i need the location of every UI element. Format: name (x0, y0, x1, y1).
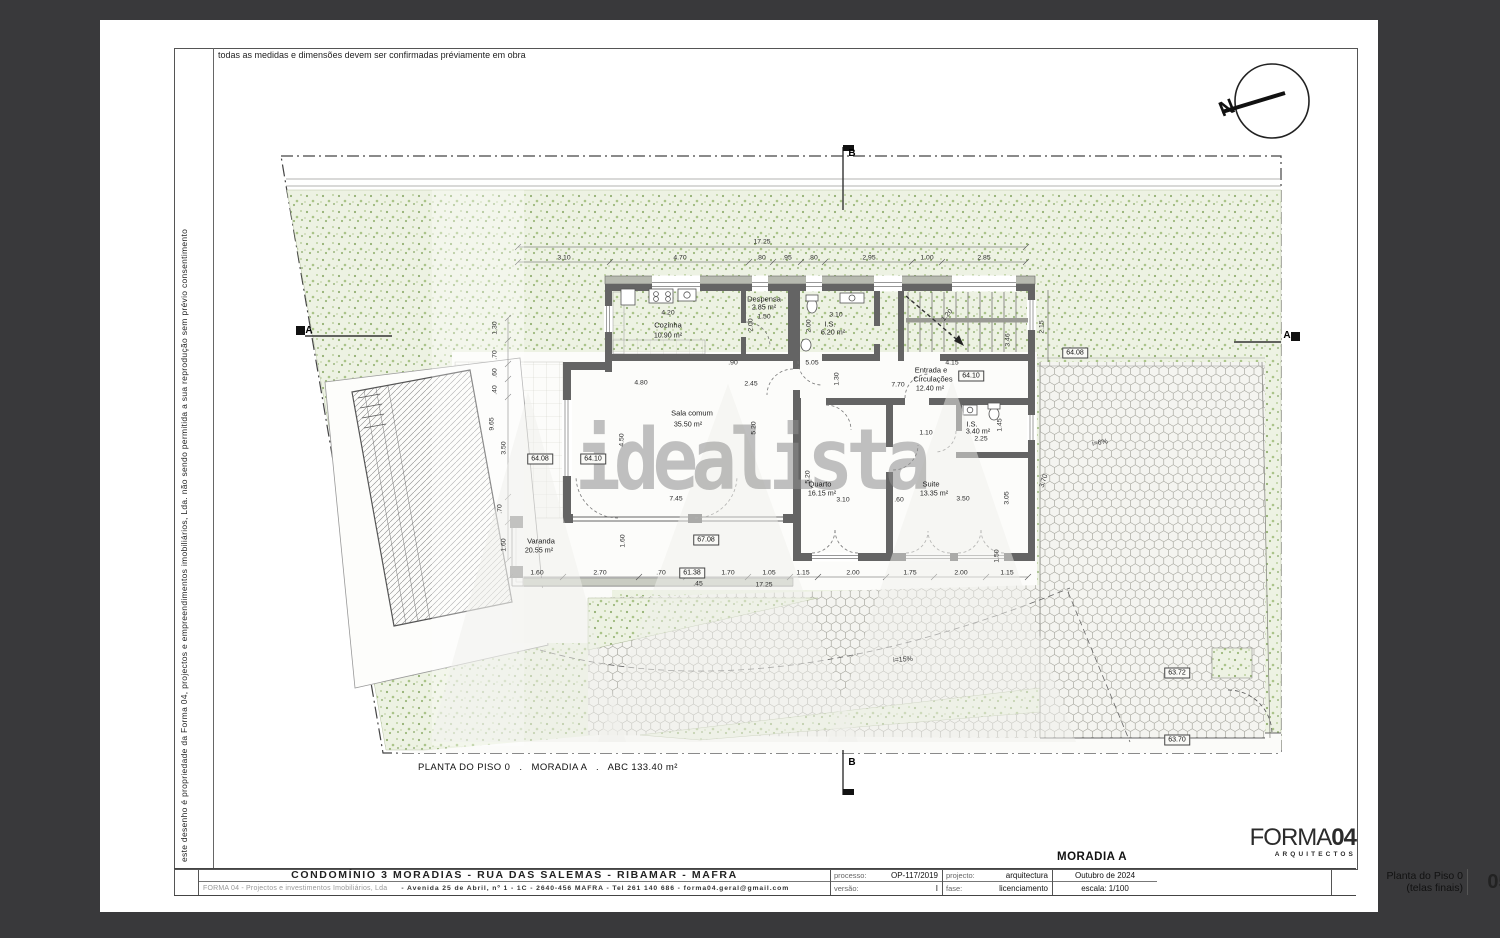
title-block-project: CONDOMÍNIO 3 MORADIAS - RUA DAS SALEMAS … (198, 869, 830, 895)
screenshot-stage: idealista Cozinha10.90 m²4.20Despensa2.8… (0, 0, 1500, 938)
measurements-note: todas as medidas e dimensões devem ser c… (218, 50, 526, 60)
fase-value: licenciamento (999, 884, 1048, 893)
projecto-value: arquitectura (1006, 871, 1048, 880)
versao-value: I (936, 884, 938, 893)
company-address: - Avenida 25 de Abril, nº 1 - 1C - 2640-… (401, 885, 789, 892)
processo-label: processo: (834, 871, 867, 880)
title-block: CONDOMÍNIO 3 MORADIAS - RUA DAS SALEMAS … (174, 868, 1356, 896)
fase-label: fase: (946, 884, 962, 893)
copyright-side-note: este desenho é propriedade da Forma 04, … (179, 50, 189, 862)
logo-forma-text: FORMA (1250, 824, 1332, 851)
title-block-processo: processo:OP-117/2019 versão:I (830, 869, 942, 895)
north-arrow-icon (1222, 64, 1309, 138)
date-value: Outubro de 2024 (1053, 869, 1157, 882)
versao-label: versão: (834, 884, 859, 893)
sheet-title-line1: Planta do Piso 0 (1387, 870, 1463, 882)
plan-caption: PLANTA DO PISO 0 . MORADIA A . ABC 133.4… (418, 762, 678, 773)
idealista-watermark: idealista (575, 410, 915, 510)
logo-04-text: 04 (1331, 824, 1356, 851)
company-name: FORMA 04 - Projectos e investimentos Imo… (203, 885, 387, 892)
title-block-spacer (174, 869, 198, 895)
moradia-label: MORADIA A (1057, 851, 1127, 863)
scale-value: escala: 1/100 (1053, 882, 1157, 895)
sheet-number: 05 (1467, 869, 1500, 895)
company-address-row: FORMA 04 - Projectos e investimentos Imo… (199, 882, 830, 895)
sheet-title: Planta do Piso 0 (telas finais) (1331, 869, 1467, 895)
project-title: CONDOMÍNIO 3 MORADIAS - RUA DAS SALEMAS … (199, 869, 830, 882)
processo-value: OP-117/2019 (891, 871, 938, 880)
title-block-projecto: projecto:arquitectura fase:licenciamento (942, 869, 1052, 895)
logo-text: FORMA04 (1246, 826, 1356, 850)
sheet-title-line2: (telas finais) (1406, 882, 1463, 894)
projecto-label: projecto: (946, 871, 975, 880)
logo-subtitle: ARQUITECTOS (1246, 852, 1356, 859)
title-block-date-scale: Outubro de 2024 escala: 1/100 (1052, 869, 1157, 895)
forma04-logo: FORMA04 ARQUITECTOS (1246, 826, 1356, 859)
